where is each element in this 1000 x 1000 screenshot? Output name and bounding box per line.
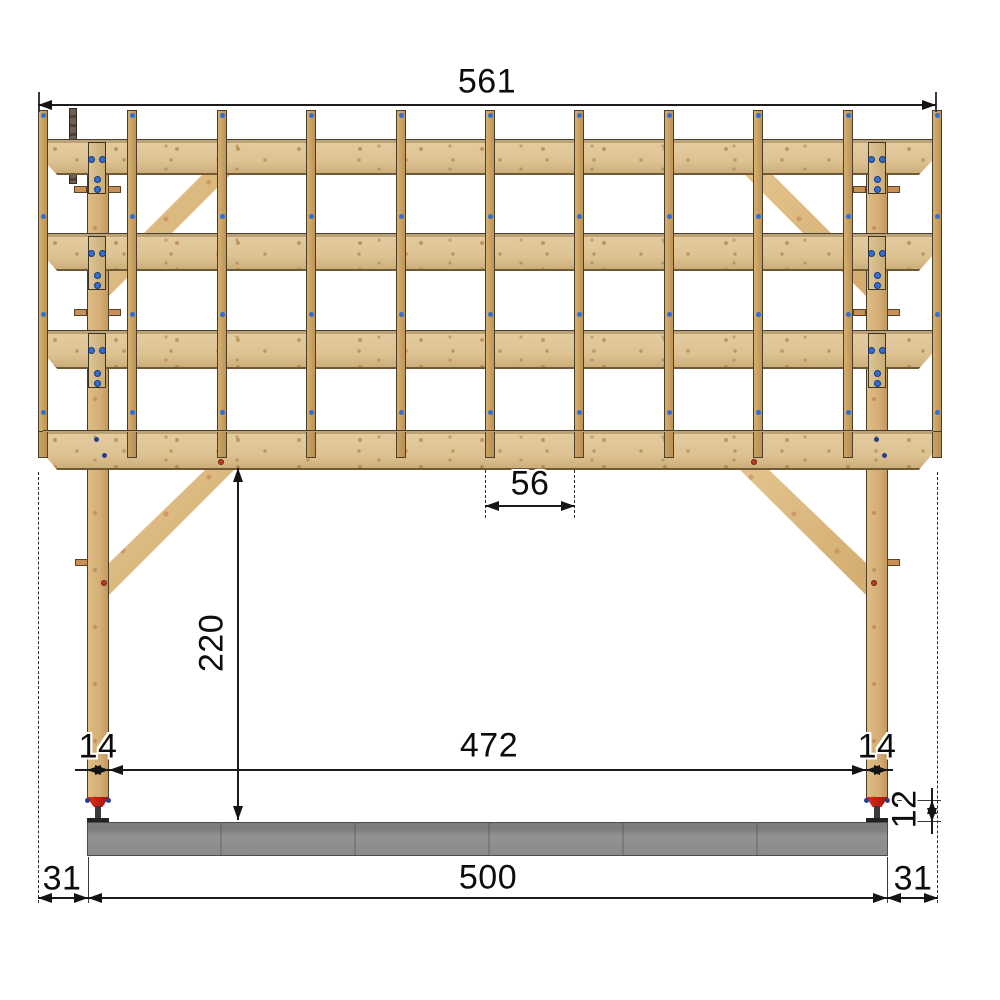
rafter-screw-dot (130, 214, 135, 219)
rafter-screw-dot (756, 410, 761, 415)
bracket-screw (868, 250, 875, 257)
rafter (664, 110, 674, 432)
rafter-screw-dot (220, 113, 225, 118)
dowel-peg (74, 186, 87, 193)
rafter (217, 110, 227, 432)
arrowhead (95, 765, 109, 775)
rafter-screw-dot (41, 214, 46, 219)
rafter-screw-dot (41, 113, 46, 118)
ext-dashed-right-outer (937, 472, 938, 903)
arrowhead (38, 100, 52, 110)
dim-label-left-post-width: 14 (79, 728, 118, 767)
rafter (843, 110, 853, 432)
dim-label-rafter-spacing: 56 (511, 465, 550, 504)
dowel-peg (75, 559, 88, 566)
red-screw-dot (751, 459, 757, 465)
dim-label-foundation-length: 500 (459, 859, 517, 898)
bracket-screw (879, 347, 886, 354)
bracket-screw (874, 272, 881, 279)
anchor-bolt-dot (85, 798, 90, 803)
bracket-screw (94, 176, 101, 183)
post-anchor-base (87, 818, 109, 822)
dim-label-right-overhang: 31 (894, 860, 933, 899)
dim-label-post-base-height: 12 (886, 790, 925, 829)
dowel-peg (853, 309, 866, 316)
rafter-screw-dot (488, 410, 493, 415)
bracket-screw (99, 156, 106, 163)
beam-screw-dot (882, 453, 887, 458)
rafter-screw-dot (846, 410, 851, 415)
bracket-screw (88, 156, 95, 163)
lower-right-brace (737, 467, 866, 595)
rafter-end-notch (932, 432, 942, 458)
rafter-end-notch (217, 432, 227, 458)
beam-screw-dot (874, 437, 879, 442)
rafter-screw-dot (667, 410, 672, 415)
rafter-screw-dot (756, 214, 761, 219)
dowel-peg (887, 559, 900, 566)
rafter-screw-dot (667, 113, 672, 118)
bracket-screw (874, 380, 881, 387)
rafter-screw-dot (667, 214, 672, 219)
bracket-screw (88, 347, 95, 354)
red-screw-dot (101, 580, 107, 586)
bracket-screw (99, 347, 106, 354)
bracket-screw (94, 370, 101, 377)
rafter-end-notch (306, 432, 316, 458)
arrowhead (873, 893, 887, 903)
arrowhead (922, 100, 936, 110)
arrowhead (233, 468, 243, 482)
rafter-end-notch (574, 432, 584, 458)
rafter (38, 110, 48, 432)
ext-dashed-left-outer (38, 472, 39, 903)
bracket-screw (879, 156, 886, 163)
arrowhead (852, 765, 866, 775)
arrowhead (233, 806, 243, 820)
technical-drawing-canvas: 561 56 220 14 472 14 12 31 500 31 (0, 0, 1000, 1000)
rafter-screw-dot (130, 113, 135, 118)
rafter-screw-dot (756, 113, 761, 118)
arrowhead (109, 765, 123, 775)
rafter-end-notch (38, 432, 48, 458)
anchor-bolt-dot (864, 798, 869, 803)
bracket-screw (94, 282, 101, 289)
arrowhead (561, 501, 575, 511)
red-screw-dot (218, 459, 224, 465)
rafter-screw-dot (309, 113, 314, 118)
rafter-screw-dot (846, 214, 851, 219)
arrowhead (88, 893, 102, 903)
beam-screw-dot (94, 437, 99, 442)
beam-screw-dot (102, 453, 107, 458)
rafter-screw-dot (130, 312, 135, 317)
rafter (306, 110, 316, 432)
rafter-screw-dot (309, 214, 314, 219)
dim-label-right-post-width: 14 (858, 728, 897, 767)
bracket-screw (94, 186, 101, 193)
rafter-screw-dot (935, 214, 940, 219)
arrowhead (874, 765, 888, 775)
dim-label-clear-span: 472 (460, 727, 518, 766)
rafter (932, 110, 942, 432)
rafter (396, 110, 406, 432)
rafter-screw-dot (846, 312, 851, 317)
rafter-screw-dot (488, 214, 493, 219)
rafter-screw-dot (220, 214, 225, 219)
rafter-screw-dot (935, 410, 940, 415)
rafter-screw-dot (488, 312, 493, 317)
bracket-screw (94, 380, 101, 387)
rafter-screw-dot (577, 410, 582, 415)
dim-label-post-height: 220 (193, 614, 232, 672)
rafter-screw-dot (935, 312, 940, 317)
rafter-screw-dot (399, 410, 404, 415)
rafter-end-notch (753, 432, 763, 458)
arrowhead (927, 808, 937, 822)
rafter-screw-dot (667, 312, 672, 317)
rafter-screw-dot (309, 410, 314, 415)
bracket-screw (874, 176, 881, 183)
rafter (485, 110, 495, 432)
dowel-peg (108, 309, 121, 316)
rafter-screw-dot (220, 410, 225, 415)
rafter-end-notch (127, 432, 137, 458)
rafter-screw-dot (488, 113, 493, 118)
rafter-screw-dot (399, 312, 404, 317)
bracket-screw (868, 347, 875, 354)
rafter-screw-dot (756, 312, 761, 317)
rafter-screw-dot (130, 410, 135, 415)
concrete-foundation (87, 822, 888, 856)
dim-label-overall-width: 561 (458, 63, 516, 102)
rafter-screw-dot (399, 214, 404, 219)
rafter-end-notch (664, 432, 674, 458)
bracket-screw (99, 250, 106, 257)
dowel-peg (887, 186, 900, 193)
rafter-screw-dot (41, 312, 46, 317)
rafter (753, 110, 763, 432)
red-screw-dot (871, 580, 877, 586)
rafter-screw-dot (41, 410, 46, 415)
dowel-peg (108, 186, 121, 193)
rafter-screw-dot (577, 214, 582, 219)
rafter-end-notch (843, 432, 853, 458)
bracket-screw (88, 250, 95, 257)
bracket-screw (879, 250, 886, 257)
bracket-screw (874, 370, 881, 377)
dim-line-overall (38, 104, 936, 106)
rafter-screw-dot (846, 113, 851, 118)
arrowhead (485, 501, 499, 511)
rafter-screw-dot (220, 312, 225, 317)
rafter-screw-dot (577, 312, 582, 317)
bracket-screw (94, 272, 101, 279)
rafter-end-notch (396, 432, 406, 458)
rafter-screw-dot (577, 113, 582, 118)
dowel-peg (74, 309, 87, 316)
bracket-screw (868, 156, 875, 163)
rafter (127, 110, 137, 432)
anchor-bolt-dot (106, 798, 111, 803)
rafter-screw-dot (399, 113, 404, 118)
rafter (574, 110, 584, 432)
rafter-end-notch (485, 432, 495, 458)
dim-label-left-overhang: 31 (43, 860, 82, 899)
dowel-peg (887, 309, 900, 316)
dowel-peg (853, 186, 866, 193)
bracket-screw (874, 282, 881, 289)
bracket-screw (874, 186, 881, 193)
dim-line-span-row (75, 769, 893, 771)
dim-line-post-height (237, 468, 239, 820)
lower-left-brace (109, 467, 237, 595)
rafter-screw-dot (309, 312, 314, 317)
rafter-screw-dot (935, 113, 940, 118)
